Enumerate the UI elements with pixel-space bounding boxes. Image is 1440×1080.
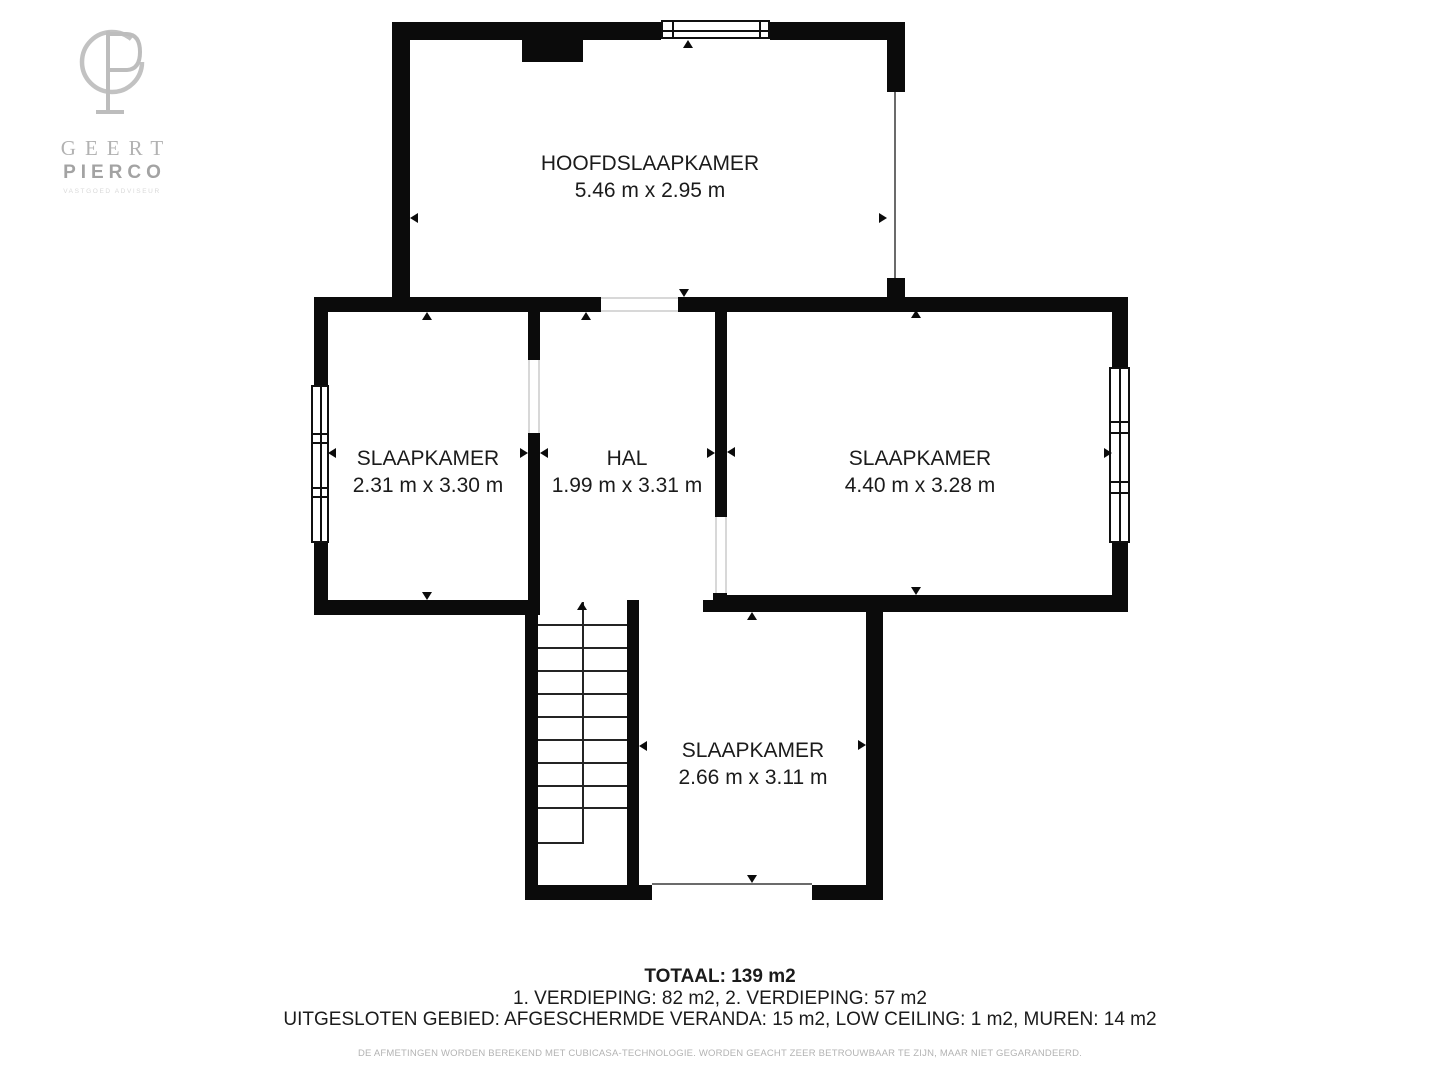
opening-cap-line bbox=[715, 517, 717, 593]
wall-segment bbox=[525, 615, 538, 900]
dimension-arrow-icon bbox=[707, 448, 715, 458]
logo-name-line1: GEERT bbox=[32, 136, 192, 161]
wall-segment bbox=[770, 22, 905, 40]
wall-segment bbox=[314, 297, 601, 312]
wall-segment bbox=[678, 297, 1128, 312]
window bbox=[1109, 367, 1130, 543]
chimney-block bbox=[522, 40, 583, 62]
wall-segment bbox=[1112, 297, 1128, 367]
room-label-slaapkamer-links: SLAAPKAMER 2.31 m x 3.30 m bbox=[353, 445, 504, 499]
wall-segment bbox=[525, 885, 652, 900]
room-dimensions: 4.40 m x 3.28 m bbox=[845, 472, 996, 499]
stair-guide-line bbox=[538, 842, 583, 844]
dimension-arrow-icon bbox=[410, 213, 418, 223]
dimension-arrow-icon bbox=[911, 587, 921, 595]
opening-cap-line bbox=[538, 360, 540, 433]
dimension-arrow-icon bbox=[328, 448, 336, 458]
dimension-arrow-icon bbox=[679, 289, 689, 297]
dimension-arrow-icon bbox=[422, 592, 432, 600]
window bbox=[311, 385, 329, 543]
room-dimensions: 2.31 m x 3.30 m bbox=[353, 472, 504, 499]
dimension-arrow-icon bbox=[911, 310, 921, 318]
dimension-arrow-icon bbox=[747, 875, 757, 883]
wall-segment bbox=[887, 22, 905, 92]
dimension-arrow-icon bbox=[727, 447, 735, 457]
wall-segment bbox=[703, 600, 878, 612]
room-label-slaapkamer-rechts: SLAAPKAMER 4.40 m x 3.28 m bbox=[845, 445, 996, 499]
disclaimer-text: DE AFMETINGEN WORDEN BEREKEND MET CUBICA… bbox=[0, 1043, 1440, 1065]
dimension-arrow-icon bbox=[422, 312, 432, 320]
open-boundary-line bbox=[894, 92, 896, 278]
dimension-arrow-icon bbox=[683, 40, 693, 48]
logo-monogram-icon bbox=[70, 28, 154, 122]
room-label-hal: HAL 1.99 m x 3.31 m bbox=[552, 445, 703, 499]
dimension-arrow-icon bbox=[747, 612, 757, 620]
wall-segment bbox=[812, 885, 883, 900]
logo-tagline: VASTGOED ADVISEUR bbox=[32, 188, 192, 195]
wall-segment bbox=[528, 312, 540, 360]
room-label-slaapkamer-onder: SLAAPKAMER 2.66 m x 3.11 m bbox=[678, 737, 827, 791]
wall-segment bbox=[866, 612, 883, 885]
room-name: HAL bbox=[552, 445, 703, 472]
room-dimensions: 1.99 m x 3.31 m bbox=[552, 472, 703, 499]
dimension-arrow-icon bbox=[540, 448, 548, 458]
floor-areas-text: 1. VERDIEPING: 82 m2, 2. VERDIEPING: 57 … bbox=[0, 988, 1440, 1010]
dimension-arrow-icon bbox=[639, 741, 647, 751]
wall-segment bbox=[528, 433, 540, 615]
dimension-arrow-icon bbox=[858, 740, 866, 750]
opening-cap-line bbox=[601, 297, 678, 299]
staircase bbox=[538, 600, 627, 885]
total-area-text: TOTAAL: 139 m2 bbox=[0, 966, 1440, 988]
wall-segment bbox=[314, 600, 538, 615]
dimension-arrow-icon bbox=[520, 448, 528, 458]
area-summary: TOTAAL: 139 m2 1. VERDIEPING: 82 m2, 2. … bbox=[0, 966, 1440, 1064]
wall-segment bbox=[392, 22, 661, 40]
room-name: SLAAPKAMER bbox=[678, 737, 827, 764]
opening-cap-line bbox=[528, 360, 530, 433]
room-name: SLAAPKAMER bbox=[845, 445, 996, 472]
opening-cap-line bbox=[725, 517, 727, 593]
stair-guide-line bbox=[582, 602, 584, 844]
logo-name-line2: PIERCO bbox=[32, 162, 192, 184]
stair-direction-arrow-icon bbox=[577, 602, 587, 610]
room-dimensions: 5.46 m x 2.95 m bbox=[541, 177, 759, 204]
agency-logo: GEERT PIERCO VASTGOED ADVISEUR bbox=[32, 28, 192, 195]
room-dimensions: 2.66 m x 3.11 m bbox=[678, 764, 827, 791]
wall-segment bbox=[715, 312, 727, 517]
floorplan-page: GEERT PIERCO VASTGOED ADVISEUR bbox=[0, 0, 1440, 1080]
room-label-hoofdslaapkamer: HOOFDSLAAPKAMER 5.46 m x 2.95 m bbox=[541, 150, 759, 204]
dimension-arrow-icon bbox=[879, 213, 887, 223]
opening-cap-line bbox=[601, 310, 678, 312]
room-name: HOOFDSLAAPKAMER bbox=[541, 150, 759, 177]
dimension-arrow-icon bbox=[581, 312, 591, 320]
wall-segment bbox=[627, 600, 639, 887]
excluded-areas-text: UITGESLOTEN GEBIED: AFGESCHERMDE VERANDA… bbox=[0, 1009, 1440, 1031]
veranda-boundary-line bbox=[652, 883, 812, 885]
wall-segment bbox=[392, 22, 410, 312]
room-name: SLAAPKAMER bbox=[353, 445, 504, 472]
dimension-arrow-icon bbox=[1104, 448, 1112, 458]
window bbox=[661, 20, 770, 39]
wall-segment bbox=[314, 312, 328, 385]
